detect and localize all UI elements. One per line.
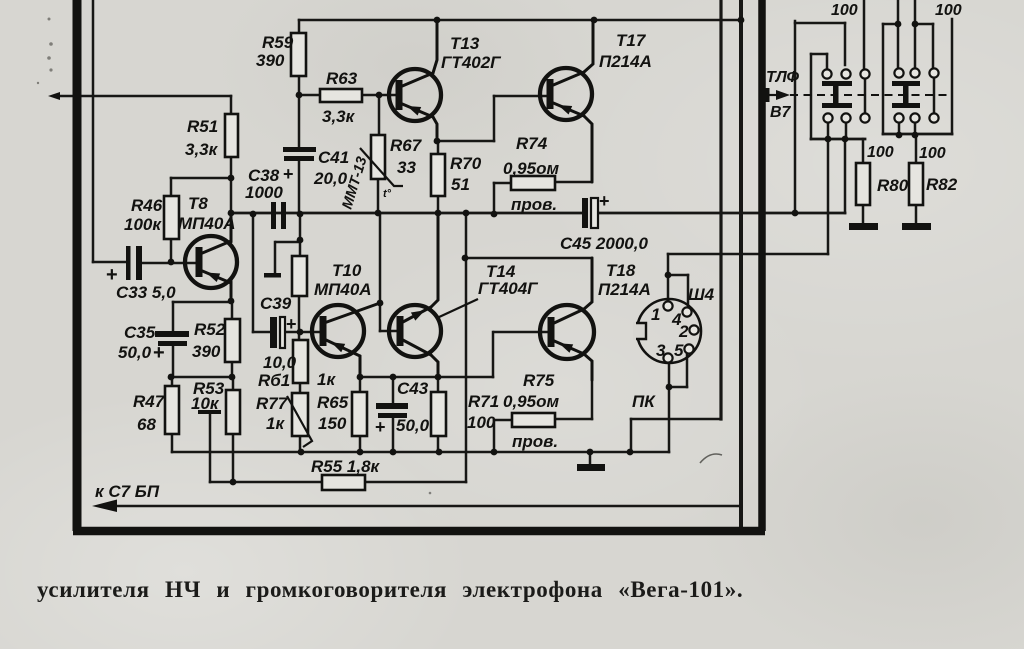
svg-text:1к: 1к [317, 370, 336, 389]
svg-text:С39: С39 [260, 294, 292, 313]
svg-text:Т8: Т8 [188, 194, 208, 213]
svg-text:В7: В7 [770, 104, 792, 121]
svg-text:R46: R46 [131, 196, 163, 215]
svg-text:МП40А: МП40А [314, 280, 372, 299]
svg-text:100: 100 [935, 2, 962, 19]
svg-text:20,0: 20,0 [313, 169, 348, 188]
svg-text:R67: R67 [390, 136, 423, 155]
svg-text:390: 390 [192, 342, 221, 361]
svg-text:П214А: П214А [599, 52, 652, 71]
svg-text:100: 100 [919, 145, 946, 162]
svg-text:5: 5 [674, 341, 684, 360]
svg-text:С33 5,0: С33 5,0 [116, 283, 176, 302]
svg-text:33: 33 [397, 158, 416, 177]
svg-text:С35: С35 [124, 323, 156, 342]
svg-text:0,95ом: 0,95ом [503, 159, 559, 178]
svg-text:С43: С43 [397, 379, 429, 398]
svg-text:R82: R82 [926, 175, 958, 194]
svg-text:МП40А: МП40А [178, 214, 236, 233]
svg-text:R55 1,8к: R55 1,8к [311, 457, 381, 476]
svg-text:пров.: пров. [512, 432, 558, 451]
svg-text:С41: С41 [318, 148, 349, 167]
svg-text:t°: t° [383, 188, 392, 200]
svg-text:+: + [599, 191, 610, 211]
svg-text:1к: 1к [266, 414, 285, 433]
svg-text:R80: R80 [877, 176, 909, 195]
svg-text:50,0: 50,0 [118, 343, 152, 362]
svg-text:R59: R59 [262, 33, 294, 52]
svg-text:3,3к: 3,3к [185, 140, 219, 159]
svg-text:10,0: 10,0 [263, 353, 297, 372]
svg-text:R47: R47 [133, 392, 166, 411]
svg-text:R63: R63 [326, 69, 358, 88]
svg-text:Т13: Т13 [450, 34, 480, 53]
svg-text:Ш4: Ш4 [688, 285, 715, 304]
svg-text:+: + [106, 264, 118, 286]
svg-text:2: 2 [678, 322, 689, 341]
svg-text:ГТ404Г: ГТ404Г [478, 279, 539, 298]
svg-text:пров.: пров. [511, 195, 557, 214]
svg-text:+: + [153, 342, 165, 364]
svg-text:Т10: Т10 [332, 261, 362, 280]
svg-text:R71: R71 [468, 392, 499, 411]
svg-text:R65: R65 [317, 393, 349, 412]
svg-text:68: 68 [137, 415, 156, 434]
svg-text:R52: R52 [194, 320, 226, 339]
svg-text:П214А: П214А [598, 280, 651, 299]
svg-text:390: 390 [256, 51, 285, 70]
svg-text:R70: R70 [450, 154, 482, 173]
svg-text:+: + [283, 164, 294, 184]
svg-text:150: 150 [318, 414, 347, 433]
svg-text:ГТ402Г: ГТ402Г [441, 53, 502, 72]
svg-text:3,3к: 3,3к [322, 107, 356, 126]
svg-text:ТЛФ: ТЛФ [766, 69, 800, 86]
svg-text:ПК: ПК [632, 392, 656, 411]
svg-text:R77: R77 [256, 394, 289, 413]
svg-text:С45 2000,0: С45 2000,0 [560, 234, 648, 253]
svg-text:+: + [286, 314, 297, 334]
svg-text:100: 100 [867, 144, 894, 161]
svg-text:100к: 100к [124, 215, 162, 234]
svg-text:51: 51 [451, 175, 470, 194]
svg-text:к С7 БП: к С7 БП [95, 482, 160, 501]
svg-text:Т18: Т18 [606, 261, 636, 280]
svg-text:1: 1 [651, 305, 660, 324]
svg-text:Rб1: Rб1 [258, 371, 290, 390]
svg-text:50,0: 50,0 [396, 416, 430, 435]
svg-text:+: + [375, 417, 386, 437]
svg-text:100: 100 [831, 2, 858, 19]
svg-text:Т17: Т17 [616, 31, 647, 50]
svg-text:R74: R74 [516, 134, 548, 153]
svg-text:10к: 10к [191, 394, 220, 413]
svg-text:3: 3 [656, 341, 666, 360]
svg-text:1000: 1000 [245, 183, 283, 202]
svg-text:100: 100 [467, 413, 496, 432]
svg-text:R75: R75 [523, 371, 555, 390]
svg-text:R51: R51 [187, 117, 218, 136]
svg-text:0,95ом: 0,95ом [503, 392, 559, 411]
